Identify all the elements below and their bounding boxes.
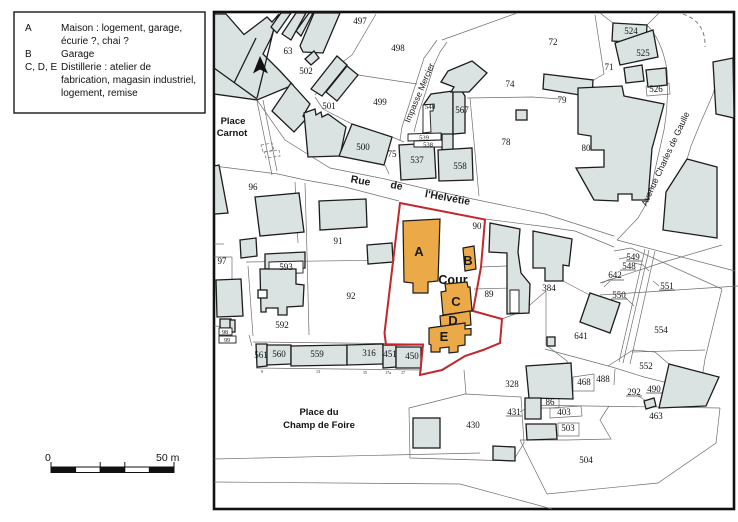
- svg-text:551: 551: [660, 281, 674, 291]
- svg-text:503: 503: [561, 423, 575, 433]
- svg-text:E: E: [440, 329, 449, 344]
- svg-text:75: 75: [388, 149, 398, 159]
- svg-text:17a: 17a: [385, 370, 391, 375]
- svg-text:552: 552: [639, 361, 653, 371]
- svg-text:de: de: [389, 179, 403, 193]
- svg-text:92: 92: [347, 291, 356, 301]
- svg-text:A: A: [414, 244, 424, 259]
- svg-text:316: 316: [362, 348, 376, 358]
- svg-text:écurie ?, chai ?: écurie ?, chai ?: [61, 36, 129, 47]
- svg-text:490: 490: [647, 384, 661, 394]
- svg-text:538: 538: [423, 142, 433, 149]
- svg-text:567: 567: [455, 105, 469, 115]
- svg-text:500: 500: [356, 142, 370, 152]
- svg-text:537: 537: [410, 155, 424, 165]
- svg-text:539: 539: [419, 135, 429, 142]
- svg-text:524: 524: [624, 26, 638, 36]
- svg-text:Champ de Foire: Champ de Foire: [283, 420, 355, 431]
- svg-text:292: 292: [627, 387, 641, 397]
- svg-text:80: 80: [582, 143, 592, 153]
- svg-text:A: A: [25, 23, 32, 34]
- svg-text:71: 71: [605, 62, 614, 72]
- svg-text:463: 463: [649, 411, 663, 421]
- svg-text:90: 90: [473, 221, 483, 231]
- svg-text:592: 592: [275, 320, 289, 330]
- svg-text:C, D, E: C, D, E: [25, 62, 58, 73]
- svg-text:Distillerie : atelier de: Distillerie : atelier de: [61, 62, 151, 73]
- svg-text:Place: Place: [221, 116, 246, 127]
- svg-text:328: 328: [505, 379, 519, 389]
- svg-text:431: 431: [507, 407, 521, 417]
- svg-text:0: 0: [45, 452, 51, 464]
- svg-text:C: C: [451, 294, 461, 309]
- svg-text:99: 99: [224, 338, 230, 344]
- svg-text:91: 91: [334, 236, 343, 246]
- svg-text:15: 15: [363, 370, 367, 375]
- svg-text:593: 593: [279, 262, 293, 272]
- svg-text:78: 78: [502, 137, 512, 147]
- svg-text:641: 641: [574, 331, 588, 341]
- svg-text:468: 468: [577, 377, 591, 387]
- svg-text:451: 451: [383, 349, 397, 359]
- svg-text:17: 17: [401, 370, 405, 375]
- svg-text:501: 501: [322, 101, 336, 111]
- svg-text:550: 550: [612, 290, 626, 300]
- svg-text:13: 13: [316, 369, 320, 374]
- svg-text:488: 488: [596, 374, 610, 384]
- svg-text:642: 642: [608, 270, 622, 280]
- svg-text:504: 504: [579, 455, 593, 465]
- svg-text:554: 554: [654, 325, 668, 335]
- svg-text:Garage: Garage: [61, 49, 95, 60]
- svg-text:74: 74: [506, 79, 516, 89]
- svg-text:96: 96: [249, 182, 259, 192]
- svg-text:559: 559: [310, 349, 324, 359]
- svg-text:89: 89: [485, 289, 495, 299]
- svg-text:98: 98: [222, 330, 228, 336]
- svg-text:72: 72: [549, 37, 558, 47]
- svg-text:558: 558: [453, 161, 467, 171]
- svg-text:560: 560: [272, 349, 286, 359]
- svg-text:497: 497: [353, 16, 367, 26]
- svg-text:499: 499: [373, 97, 387, 107]
- svg-text:86: 86: [546, 397, 556, 407]
- svg-text:63: 63: [284, 46, 294, 56]
- svg-text:548: 548: [622, 261, 636, 271]
- svg-text:403: 403: [557, 407, 571, 417]
- svg-text:384: 384: [542, 283, 556, 293]
- svg-text:B: B: [463, 253, 472, 268]
- svg-text:D: D: [448, 313, 457, 328]
- svg-text:502: 502: [299, 66, 313, 76]
- svg-text:525: 525: [636, 48, 650, 58]
- svg-text:79: 79: [558, 95, 568, 105]
- svg-text:498: 498: [391, 43, 405, 53]
- svg-text:430: 430: [466, 420, 480, 430]
- svg-text:540: 540: [425, 103, 436, 111]
- svg-text:97: 97: [218, 256, 228, 266]
- svg-text:B: B: [25, 49, 32, 60]
- svg-text:9: 9: [261, 369, 263, 374]
- svg-text:Maison : logement, garage,: Maison : logement, garage,: [61, 23, 182, 34]
- svg-text:450: 450: [405, 351, 419, 361]
- svg-text:logement, remise: logement, remise: [61, 88, 138, 99]
- svg-text:Place du: Place du: [299, 407, 338, 418]
- svg-text:561: 561: [254, 350, 268, 360]
- svg-text:526: 526: [649, 84, 663, 94]
- svg-text:fabrication, magasin industrie: fabrication, magasin industriel,: [61, 75, 196, 86]
- svg-text:Carnot: Carnot: [217, 128, 248, 139]
- svg-text:50 m: 50 m: [156, 452, 180, 464]
